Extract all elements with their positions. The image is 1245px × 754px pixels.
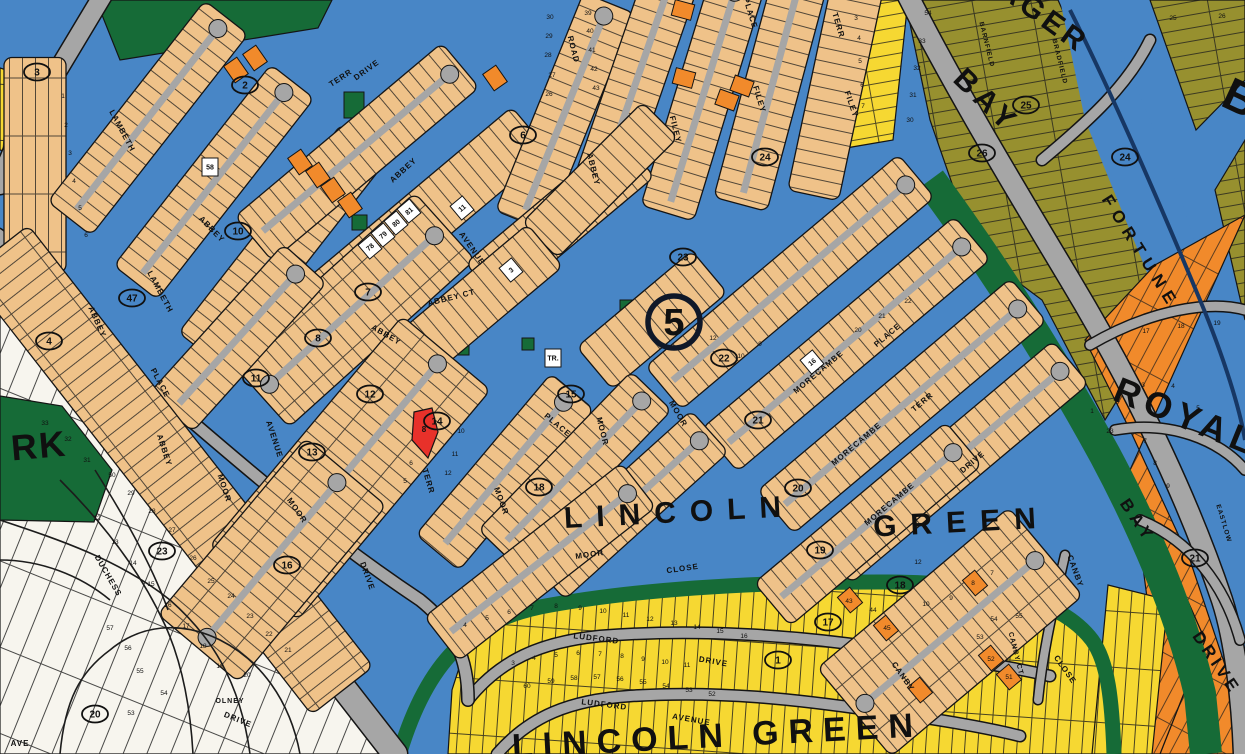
section-5-number: 5	[663, 302, 684, 344]
lot-number: 16	[164, 602, 172, 609]
lot-number: 9	[1166, 483, 1170, 490]
lot-number: 20	[243, 672, 251, 679]
section-number: 11	[251, 374, 262, 385]
lot-number: 27	[548, 72, 556, 79]
lot-number: 54	[662, 683, 670, 690]
lot-number: 4	[857, 35, 861, 42]
lot-number: 15	[716, 628, 724, 635]
lot-number: 50	[108, 472, 116, 479]
lot-number: 10	[737, 353, 745, 360]
lot-number: 24	[227, 593, 235, 600]
section-number: 3	[34, 68, 40, 79]
lot-number: 23	[1106, 428, 1114, 435]
lot-number: 6	[507, 609, 511, 616]
lot-number: 59	[547, 678, 555, 685]
lot-number: 53	[127, 710, 135, 717]
section-number: 23	[156, 547, 168, 558]
lot-number: 60	[523, 683, 531, 690]
section-number: 8	[315, 334, 321, 345]
lot-number: 7	[1143, 438, 1147, 445]
lot-number: 14	[129, 560, 137, 567]
lot-number: 28	[148, 508, 156, 515]
lot-number: 12	[444, 470, 452, 477]
lot-number: 4	[463, 622, 467, 629]
lot-number: 41	[588, 47, 596, 54]
lot-number: 13	[670, 620, 678, 627]
lot-number: 1	[1090, 408, 1094, 415]
section-number: 16	[281, 561, 293, 572]
lot-number: 42	[590, 66, 598, 73]
section-number: 14	[431, 417, 443, 428]
section-number: 10	[232, 227, 244, 238]
lot-number: 51	[1005, 674, 1013, 681]
lot-number: 43	[592, 85, 600, 92]
white-lot: TR.	[545, 349, 561, 367]
lot-number: 9	[641, 656, 645, 663]
lot-number: 29	[545, 33, 553, 40]
lot-number: 17	[182, 623, 190, 630]
lot-number: 1	[61, 93, 65, 100]
lot-number: 3	[511, 660, 515, 667]
section-number: 2	[242, 81, 248, 92]
lot-number: 4	[532, 655, 536, 662]
lot-number: 5	[403, 478, 407, 485]
section-number: 18	[533, 483, 545, 494]
street-label: OLNEY	[215, 698, 244, 705]
lot-number: 8	[620, 653, 624, 660]
lot-number: 39	[584, 10, 592, 17]
section-number: 26	[976, 149, 988, 160]
lot-number: 8	[554, 603, 558, 610]
lot-number: 18	[1177, 323, 1185, 330]
section-number: 4	[46, 337, 52, 348]
lot-number: 26	[189, 555, 197, 562]
lot-number: 10	[922, 601, 930, 608]
lot-number: 20	[854, 327, 862, 334]
lot-number: 58	[570, 675, 578, 682]
section-number: 24	[759, 153, 771, 164]
area-label: RK	[9, 423, 68, 469]
lot-number: 25	[1169, 15, 1177, 22]
lot-number: 32	[913, 65, 921, 72]
lot-number: 23	[246, 613, 254, 620]
section-number: 47	[126, 294, 138, 305]
lot-number: 9	[949, 595, 953, 602]
section-number: 15	[565, 390, 577, 401]
lot-number: 12	[93, 515, 101, 522]
lot-number: 11	[452, 451, 459, 458]
lot-number: 40	[586, 28, 594, 35]
lot-number: 9	[578, 605, 582, 612]
section-number: 17	[822, 618, 834, 629]
section-number: 19	[814, 546, 826, 557]
lot-number: 6	[84, 232, 88, 239]
lot-number: 55	[1015, 613, 1023, 620]
lot-number: 12	[646, 616, 654, 623]
svg-text:TR.: TR.	[547, 356, 558, 363]
white-lot: 58	[202, 158, 218, 176]
lot-number: 10	[599, 608, 607, 615]
lot-number: 5	[858, 58, 862, 65]
lot-number: 56	[616, 676, 624, 683]
lot-number: 54	[990, 616, 998, 623]
lot-number: 9	[758, 341, 762, 348]
lot-number: 6	[576, 650, 580, 657]
lot-number: 11	[684, 662, 691, 669]
lot-number: 52	[987, 656, 995, 663]
lot-number: 55	[639, 679, 647, 686]
lot-number: 54	[924, 10, 932, 17]
lot-number: 56	[124, 645, 132, 652]
lot-number: 5	[554, 652, 558, 659]
section-number: 1	[775, 656, 781, 667]
lot-number: 17	[1142, 328, 1150, 335]
lot-number: 10	[457, 428, 465, 435]
lot-number: 12	[709, 335, 717, 342]
lot-number: 30	[906, 117, 914, 124]
section-number: 7	[365, 288, 371, 299]
lot-number: 7	[530, 605, 534, 612]
lot-number: 33	[918, 38, 926, 45]
lot-number: 11	[623, 612, 630, 619]
lot-number: 27	[168, 527, 176, 534]
lot-number: 5	[78, 205, 82, 212]
lot-number: 21	[878, 313, 886, 320]
lot-number: 55	[136, 668, 144, 675]
lot-number: 44	[869, 607, 877, 614]
lot-number: 53	[685, 687, 693, 694]
lot-number: 22	[265, 631, 273, 638]
section-number: 6	[520, 131, 526, 142]
lot-number: 26	[1218, 13, 1226, 20]
lot-number: 7	[990, 570, 994, 577]
lot-number: 53	[976, 634, 984, 641]
section-number: 21	[1189, 554, 1201, 565]
plat-map-svg: 4567891011121314151634567891011605958575…	[0, 0, 1245, 754]
lot-number: 15	[147, 581, 155, 588]
lot-number: 8	[1153, 460, 1157, 467]
lot-number: 30	[546, 14, 554, 21]
lot-number: 5	[485, 615, 489, 622]
lot-number: 2	[64, 122, 68, 129]
plat-map: 4567891011121314151634567891011605958575…	[0, 0, 1245, 754]
section-number: 13	[306, 448, 318, 459]
lot-number: 31	[909, 92, 917, 99]
lot-number: 54	[160, 690, 168, 697]
lot-number: 18	[199, 643, 207, 650]
lot-number: 31	[83, 457, 91, 464]
lot-number: 7	[598, 651, 602, 658]
lot-number: 14	[693, 624, 701, 631]
lot-number: 4	[72, 178, 76, 185]
lot-number: 28	[544, 52, 552, 59]
lot-number: 26	[545, 91, 553, 98]
lot-number: 43	[845, 598, 853, 605]
lot-number: 3	[68, 150, 72, 157]
section-number: 25	[1020, 101, 1032, 112]
svg-text:58: 58	[206, 165, 214, 172]
lot-number: 19	[216, 663, 224, 670]
lot-number: 25	[207, 578, 215, 585]
lot-number: 45	[883, 625, 891, 632]
lot-number: 29	[127, 490, 135, 497]
lot-number: 10	[661, 659, 669, 666]
lot-number: 21	[284, 647, 292, 654]
section-number: 12	[364, 390, 376, 401]
section-number: 20	[89, 710, 101, 721]
lot-number: 19	[1213, 320, 1221, 327]
lot-number: 7	[861, 103, 865, 110]
lot-number: 22	[904, 298, 912, 305]
lot-number: 52	[708, 691, 716, 698]
lot-number: 6	[860, 82, 864, 89]
section-number: 24	[1119, 153, 1131, 164]
lot-number: 57	[106, 625, 114, 632]
lot-number: 57	[593, 674, 601, 681]
section-number: 18	[894, 581, 906, 592]
lot-number: 16	[740, 633, 748, 640]
lot-number: 8	[971, 580, 975, 587]
section-number: 23	[677, 253, 689, 264]
section-number: 21	[752, 416, 764, 427]
lot-number: 3	[854, 15, 858, 22]
street-label: AVE	[11, 739, 30, 748]
lot-number: 6	[409, 460, 413, 467]
lot-number: 12	[914, 559, 922, 566]
section-number: 22	[718, 354, 730, 365]
lot-number: 13	[111, 539, 119, 546]
